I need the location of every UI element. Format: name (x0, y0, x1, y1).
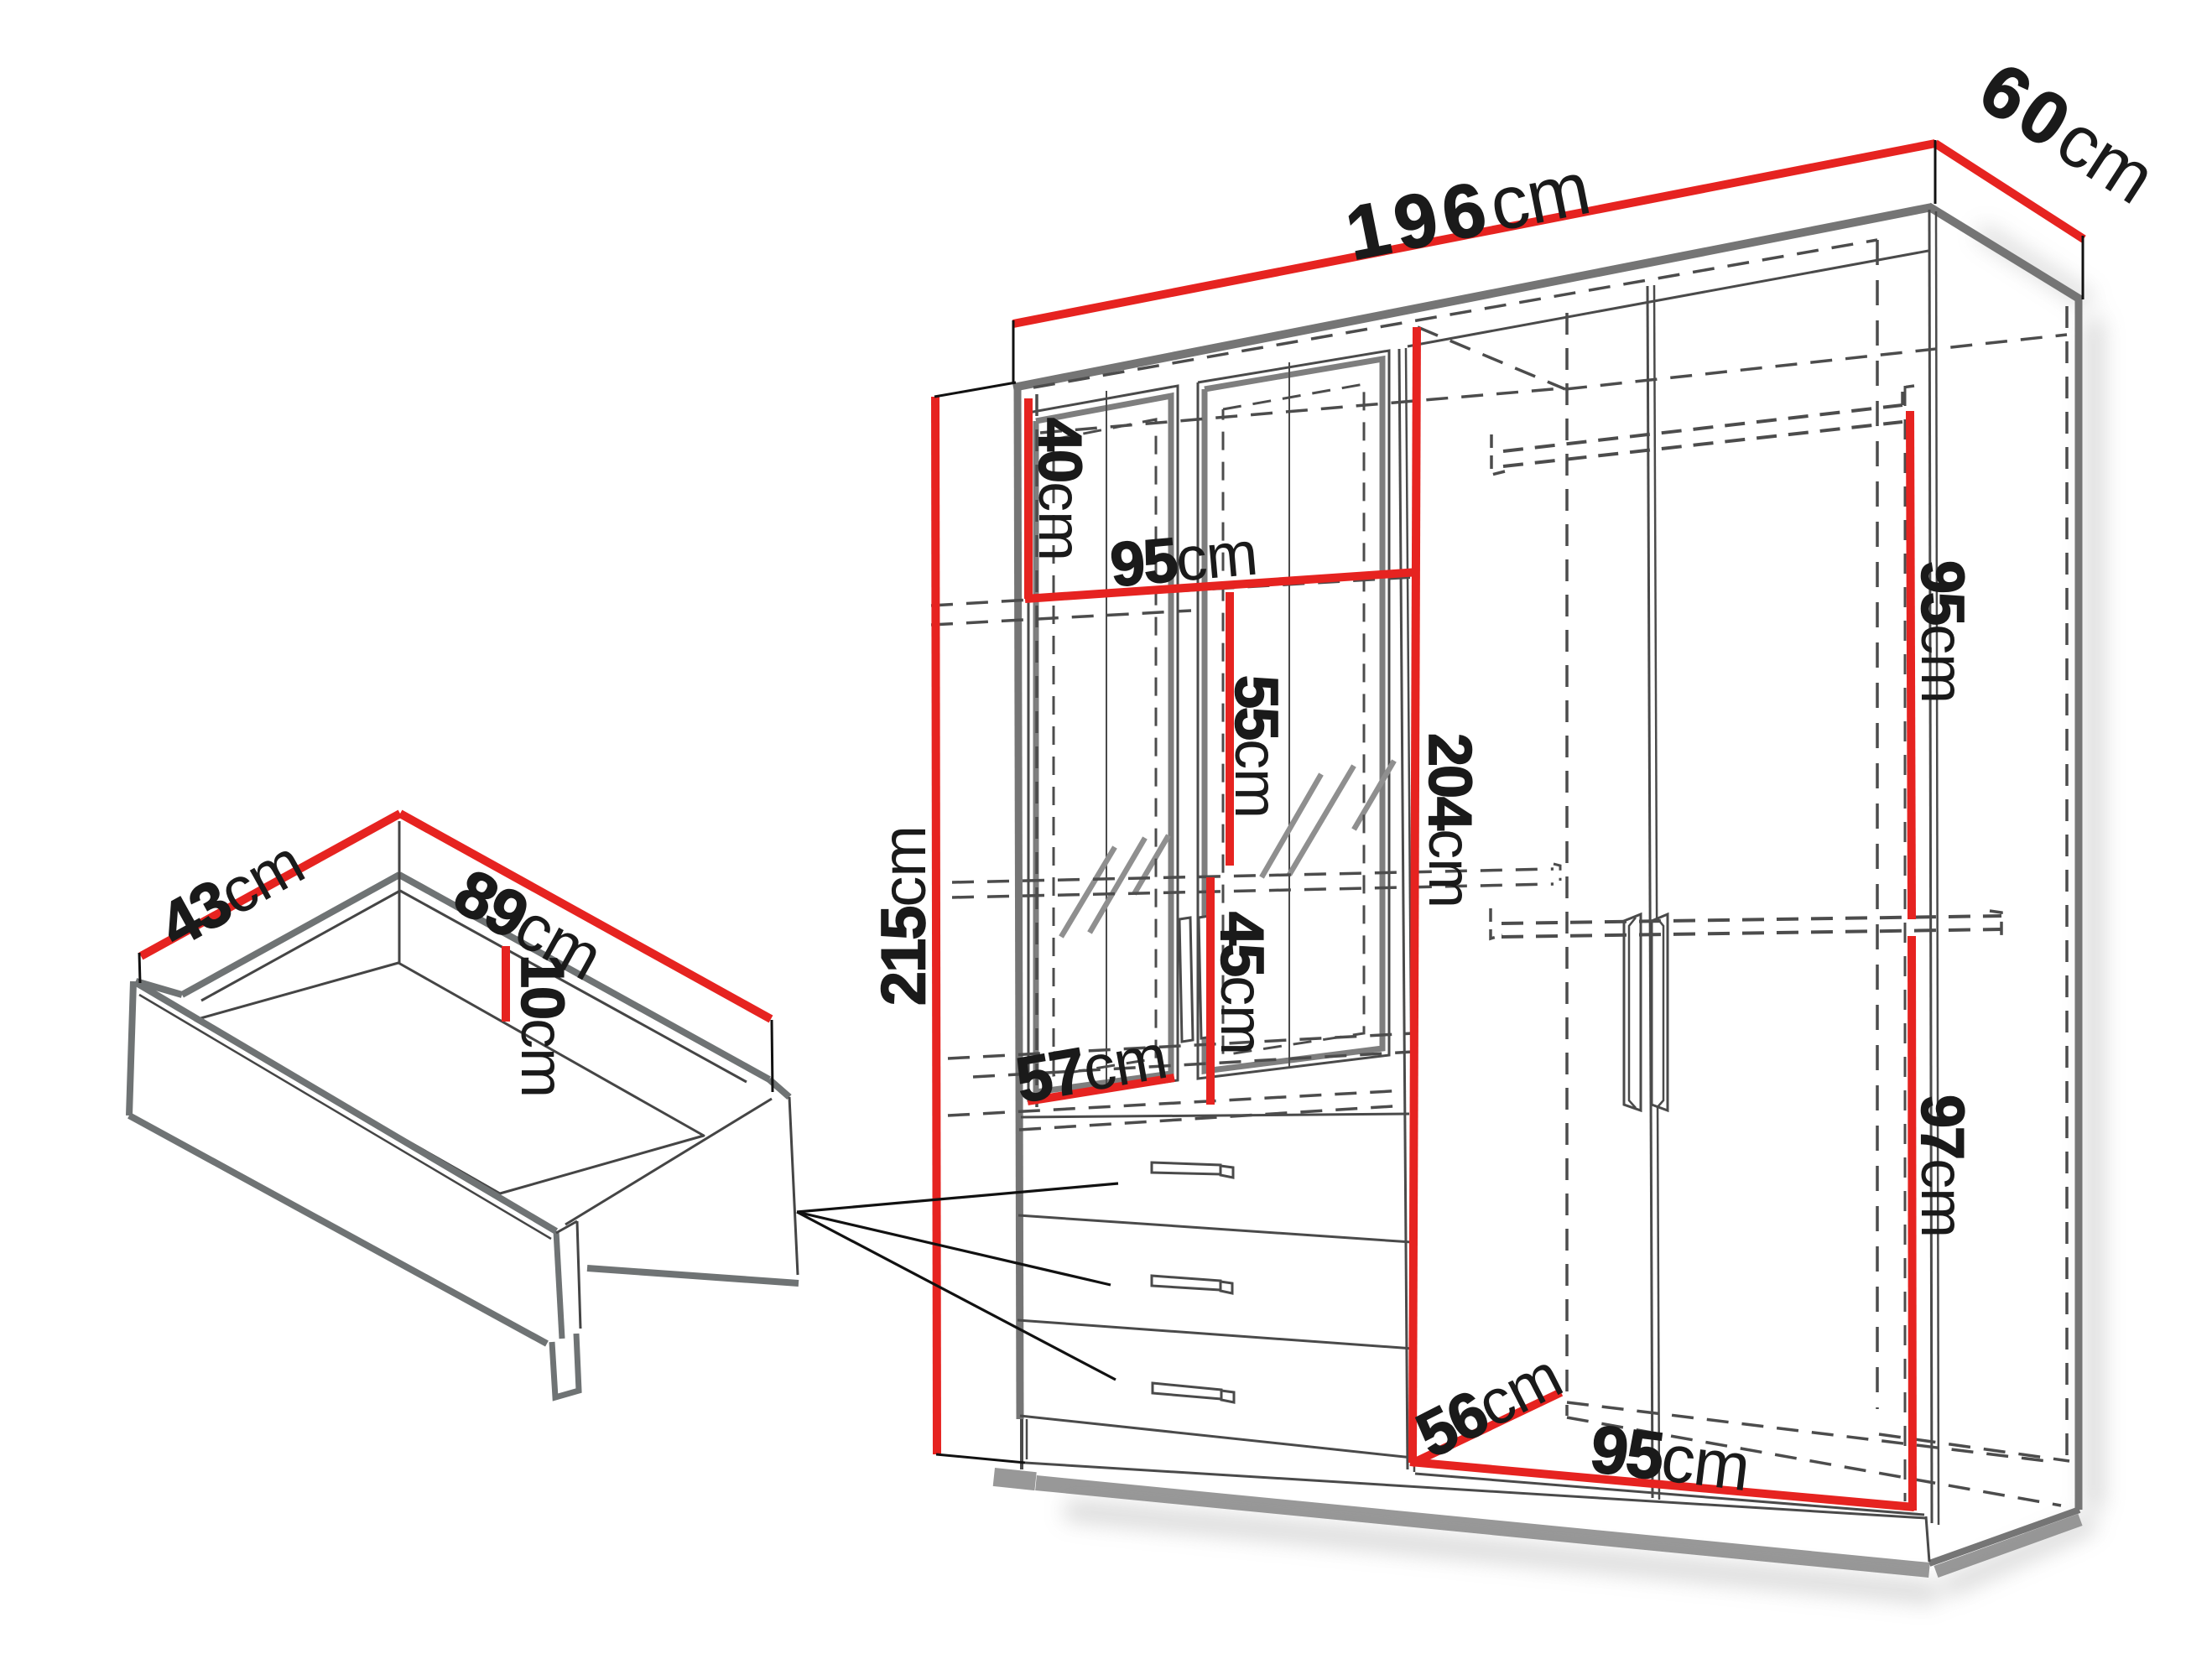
svg-text:10cm: 10cm (508, 954, 575, 1097)
svg-text:40cm: 40cm (1026, 418, 1093, 560)
svg-text:95cm: 95cm (1908, 560, 1975, 703)
svg-text:45cm: 45cm (1208, 912, 1275, 1054)
svg-text:204cm: 204cm (1416, 733, 1483, 908)
svg-text:215cm: 215cm (869, 826, 939, 1006)
svg-text:55cm: 55cm (1222, 675, 1289, 818)
svg-text:95cm: 95cm (1107, 517, 1260, 600)
svg-text:97cm: 97cm (1908, 1095, 1975, 1237)
